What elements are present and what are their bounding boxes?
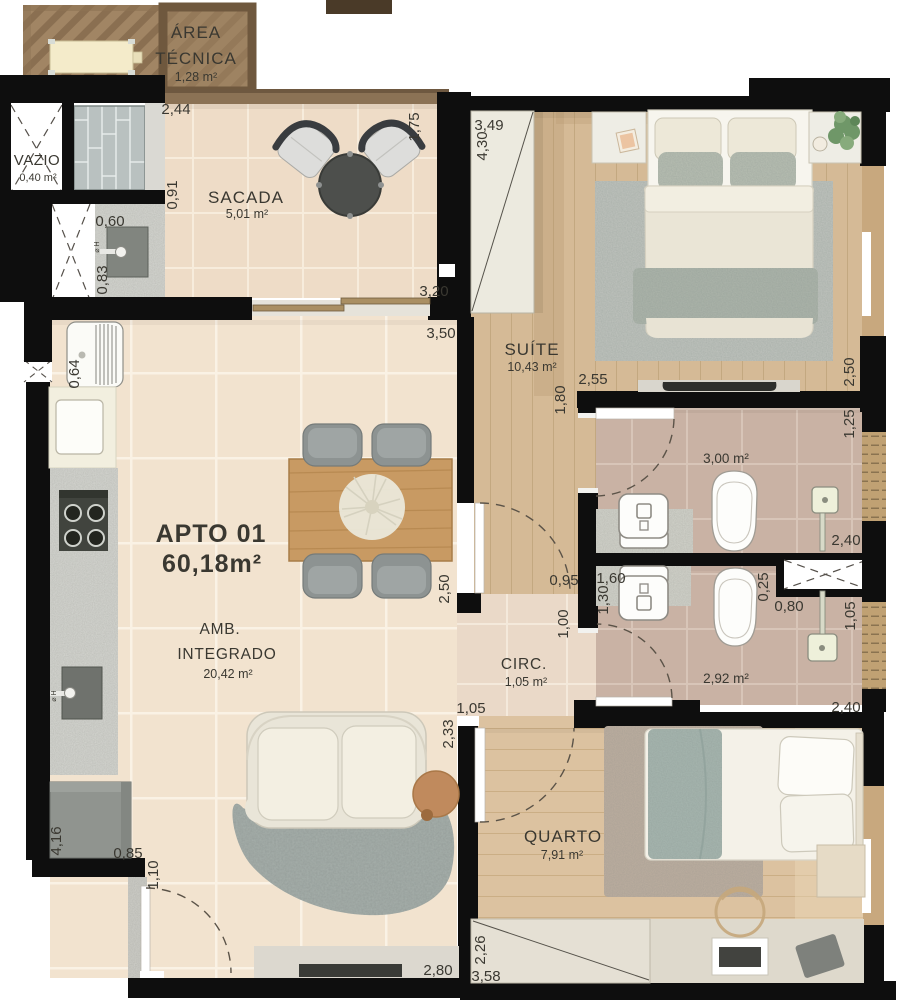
svg-text:1,05: 1,05	[456, 700, 485, 717]
svg-text:0,83: 0,83	[94, 265, 111, 294]
svg-text:3,20: 3,20	[419, 283, 448, 300]
svg-text:ÁREA: ÁREA	[171, 23, 221, 42]
svg-text:⌀ H: ⌀ H	[51, 690, 58, 701]
svg-text:0,64: 0,64	[66, 359, 83, 388]
svg-text:1,10: 1,10	[145, 860, 162, 889]
svg-text:0,91: 0,91	[164, 180, 181, 209]
svg-text:2,92 m²: 2,92 m²	[703, 671, 749, 686]
svg-text:20,42 m²: 20,42 m²	[203, 667, 252, 681]
svg-text:2,55: 2,55	[578, 371, 607, 388]
svg-text:0,95: 0,95	[549, 572, 578, 589]
svg-text:2,26: 2,26	[472, 935, 489, 964]
svg-text:2,80: 2,80	[423, 962, 452, 979]
svg-text:1,60: 1,60	[596, 570, 625, 587]
svg-text:INTEGRADO: INTEGRADO	[177, 646, 276, 663]
svg-text:⌀ H: ⌀ H	[94, 241, 101, 252]
svg-text:3,00 m²: 3,00 m²	[703, 451, 749, 466]
svg-text:0,60: 0,60	[95, 213, 124, 230]
svg-text:60,18m²: 60,18m²	[162, 550, 262, 578]
svg-text:2,33: 2,33	[440, 719, 457, 748]
svg-text:1,00: 1,00	[555, 609, 572, 638]
svg-text:2,40: 2,40	[831, 532, 860, 549]
svg-text:CIRC.: CIRC.	[501, 656, 547, 673]
svg-text:AMB.: AMB.	[199, 621, 240, 638]
svg-text:APTO 01: APTO 01	[156, 520, 267, 548]
svg-text:1,05 m²: 1,05 m²	[505, 675, 547, 689]
svg-text:1,75: 1,75	[406, 112, 423, 141]
svg-text:4,30: 4,30	[474, 131, 491, 160]
svg-text:VAZIO: VAZIO	[14, 152, 60, 169]
svg-text:5,01 m²: 5,01 m²	[226, 207, 268, 221]
svg-text:2,50: 2,50	[841, 357, 858, 386]
svg-text:0,25: 0,25	[755, 572, 772, 601]
svg-text:TÉCNICA: TÉCNICA	[155, 49, 237, 68]
svg-text:3,58: 3,58	[471, 968, 500, 985]
svg-text:SACADA: SACADA	[208, 188, 284, 207]
svg-text:0,80: 0,80	[774, 598, 803, 615]
svg-text:0,85: 0,85	[113, 845, 142, 862]
svg-text:1,80: 1,80	[552, 385, 569, 414]
svg-text:0,40 m²: 0,40 m²	[19, 172, 57, 184]
svg-text:2,40: 2,40	[831, 699, 860, 716]
svg-text:10,43 m²: 10,43 m²	[507, 360, 556, 374]
svg-text:2,50: 2,50	[436, 574, 453, 603]
svg-text:SUÍTE: SUÍTE	[504, 340, 559, 359]
svg-text:2,44: 2,44	[161, 101, 190, 118]
svg-text:QUARTO: QUARTO	[524, 827, 602, 846]
svg-text:1,28 m²: 1,28 m²	[175, 70, 217, 84]
svg-text:1,05: 1,05	[842, 601, 859, 630]
svg-text:7,91 m²: 7,91 m²	[541, 848, 583, 862]
svg-text:1,25: 1,25	[841, 409, 858, 438]
svg-text:3,50: 3,50	[426, 325, 455, 342]
svg-text:4,16: 4,16	[48, 826, 65, 855]
svg-text:1,30: 1,30	[595, 585, 612, 614]
